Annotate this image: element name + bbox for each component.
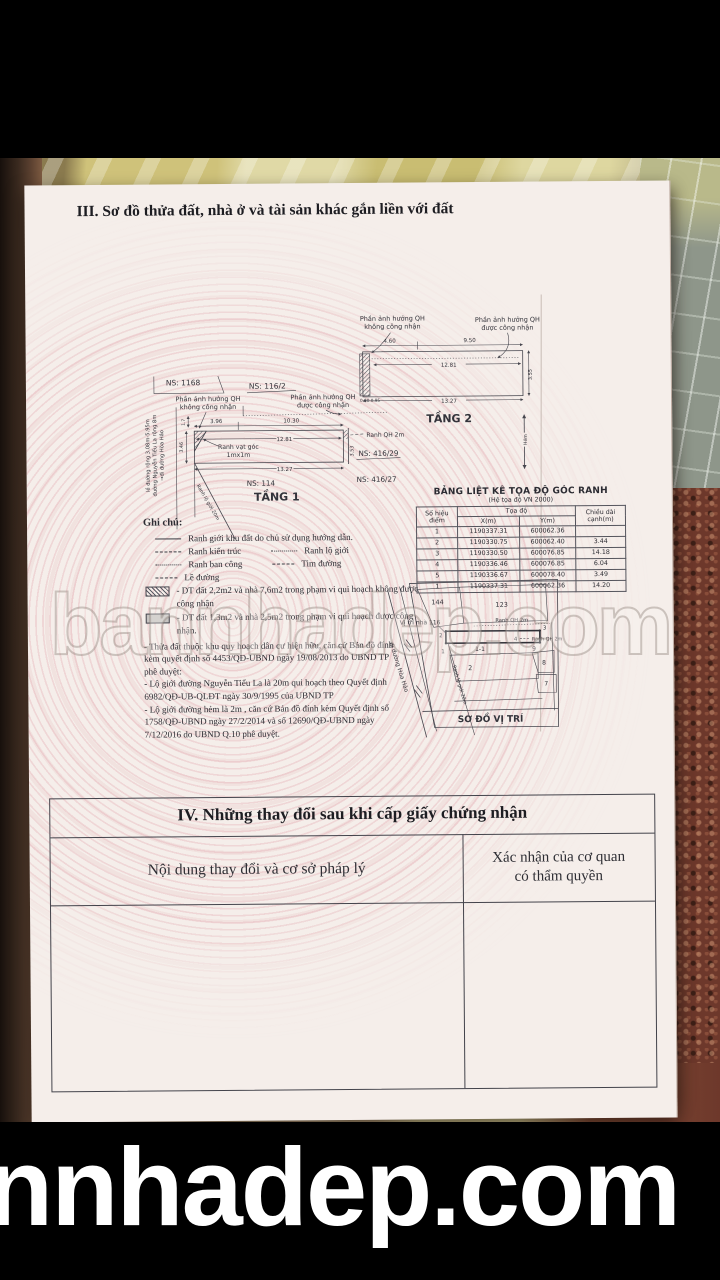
- section-iv-col-left: Nội dung thay đổi và cơ sở pháp lý: [50, 834, 463, 905]
- ranh-qh-top: Ranh QH 2m: [495, 618, 528, 624]
- parcel-8: 8: [542, 659, 546, 666]
- parcel-144: 144: [431, 598, 443, 606]
- map-pt2: 2: [439, 633, 443, 639]
- legend-dash-line: [155, 552, 181, 553]
- legend-title: Ghi chú:: [143, 513, 419, 530]
- map-pt4: 4: [514, 637, 518, 643]
- svg-text:được công nhận: được công nhận: [297, 401, 349, 409]
- floor2-plan: Phần ảnh hưởng QH không công nhận Phần ả…: [359, 314, 541, 470]
- legend-hatch-swatch: [145, 587, 169, 597]
- floor2-dim-9-50: 9.50: [463, 338, 476, 344]
- parcel-2: 2: [468, 664, 472, 672]
- ns-1168: NS: 1168: [166, 378, 201, 387]
- floor2-dim-3-55: 3.55: [528, 369, 534, 380]
- legend: Ghi chú: Ranh giới khu đất do chủ sử dụn…: [143, 513, 421, 741]
- legend-gray-swatch: [146, 613, 170, 623]
- floor2-dim-4-60: 4.60: [383, 339, 396, 345]
- svg-text:không công nhận: không công nhận: [180, 403, 236, 411]
- ranh-qh-right: Ranh QH 2m: [532, 636, 563, 642]
- corner-note: Ranh vạt góc: [218, 443, 259, 451]
- ns-116-2: NS: 116/2: [249, 382, 286, 391]
- top-letterbox-bar: [0, 0, 720, 158]
- legend-dash2-line: [155, 578, 177, 579]
- svg-text:→đi đường Hòa Hảo: →đi đường Hòa Hảo: [158, 430, 165, 481]
- floor1-dim-small: 1.7: [181, 419, 187, 426]
- map-diag-label: Ranh lộ giới 20m: [451, 664, 469, 705]
- ranh-qh-2m-label: Ranh QH 2m: [366, 432, 404, 439]
- parcel-7: 7: [544, 680, 548, 687]
- section-iv-table: IV. Những thay đổi sau khi cấp giấy chứn…: [49, 794, 657, 1093]
- floor2-alley-label: Hẻm: [522, 434, 529, 445]
- ns-114: NS: 114: [247, 479, 276, 488]
- parcel-123: 123: [495, 601, 507, 609]
- legend-solid-line: [155, 539, 181, 540]
- coordinate-table: BẢNG LIỆT KÊ TỌA ĐỘ GÓC RANH (Hệ tọa độ …: [405, 486, 638, 593]
- section-iii-title: III. Sơ đồ thửa đất, nhà ở và tài sản kh…: [76, 200, 453, 221]
- floor1-dim-3-46: 3.46: [179, 442, 185, 453]
- parcel-1-1: 1-1: [475, 646, 485, 653]
- section-iv-title: IV. Những thay đổi sau khi cấp giấy chứn…: [50, 802, 654, 827]
- parcel-9: 9: [532, 646, 536, 653]
- bottom-letterbox-bar: nnhadep.com: [0, 1122, 720, 1280]
- floor1-dim-13-27: 13.27: [277, 467, 293, 473]
- section-iv-col-right: Xác nhận của cơ quan có thẩm quyền: [462, 833, 655, 903]
- legend-finedot-line: [155, 565, 181, 566]
- legend-dashdot-line: [272, 564, 294, 565]
- svg-text:không công nhận: không công nhận: [364, 322, 420, 330]
- floor1-dim-12-81: 12.81: [276, 437, 292, 443]
- ns-416-27: NS: 416/27: [357, 475, 397, 484]
- map-pt3: 3: [543, 625, 547, 631]
- map-pt1: 1: [441, 649, 445, 655]
- coord-row: 11190337.31600062.3614.20: [417, 580, 626, 593]
- svg-text:đường Nguyễn Tiểu La rộng 8m: đường Nguyễn Tiểu La rộng 8m: [151, 415, 159, 497]
- svg-text:1mx1m: 1mx1m: [227, 452, 251, 459]
- legend-notes: - Thửa đất thuộc khu quy hoạch dân cư hi…: [144, 638, 421, 741]
- photo-of-land-certificate: { "title_iii": "III. Sơ đồ thửa đất, nhà…: [0, 0, 720, 1280]
- floor1-dim-10-30: 10.30: [283, 418, 299, 424]
- floor2-label: TẦNG 2: [426, 411, 472, 425]
- legend-dotted-line: [271, 551, 297, 552]
- floor1-dim-3-96: 3.96: [210, 419, 223, 425]
- floor2-dim-corner: 0.90 0.95: [360, 398, 380, 403]
- svg-text:được công nhận: được công nhận: [481, 324, 533, 332]
- floor1-label: TẦNG 1: [254, 489, 300, 503]
- svg-text:lề đường rộng 3.08m-5.95m: lề đường rộng 3.08m-5.95m: [143, 419, 152, 492]
- street-labels: lề đường rộng 3.08m-5.95m đường Nguyễn T…: [143, 415, 166, 497]
- bottom-watermark: nnhadep.com: [0, 1124, 679, 1251]
- ns-416-29: NS: 416/29: [358, 449, 398, 458]
- certificate-page: III. Sơ đồ thửa đất, nhà ở và tài sản kh…: [24, 180, 677, 1122]
- floor2-dim-12-81: 12.81: [441, 363, 457, 369]
- floor1-dim-3-53: 3.53: [349, 446, 355, 457]
- location-map-title: SƠ ĐỒ VỊ TRÍ: [458, 712, 524, 726]
- floor2-dim-13-27: 13.27: [441, 399, 457, 405]
